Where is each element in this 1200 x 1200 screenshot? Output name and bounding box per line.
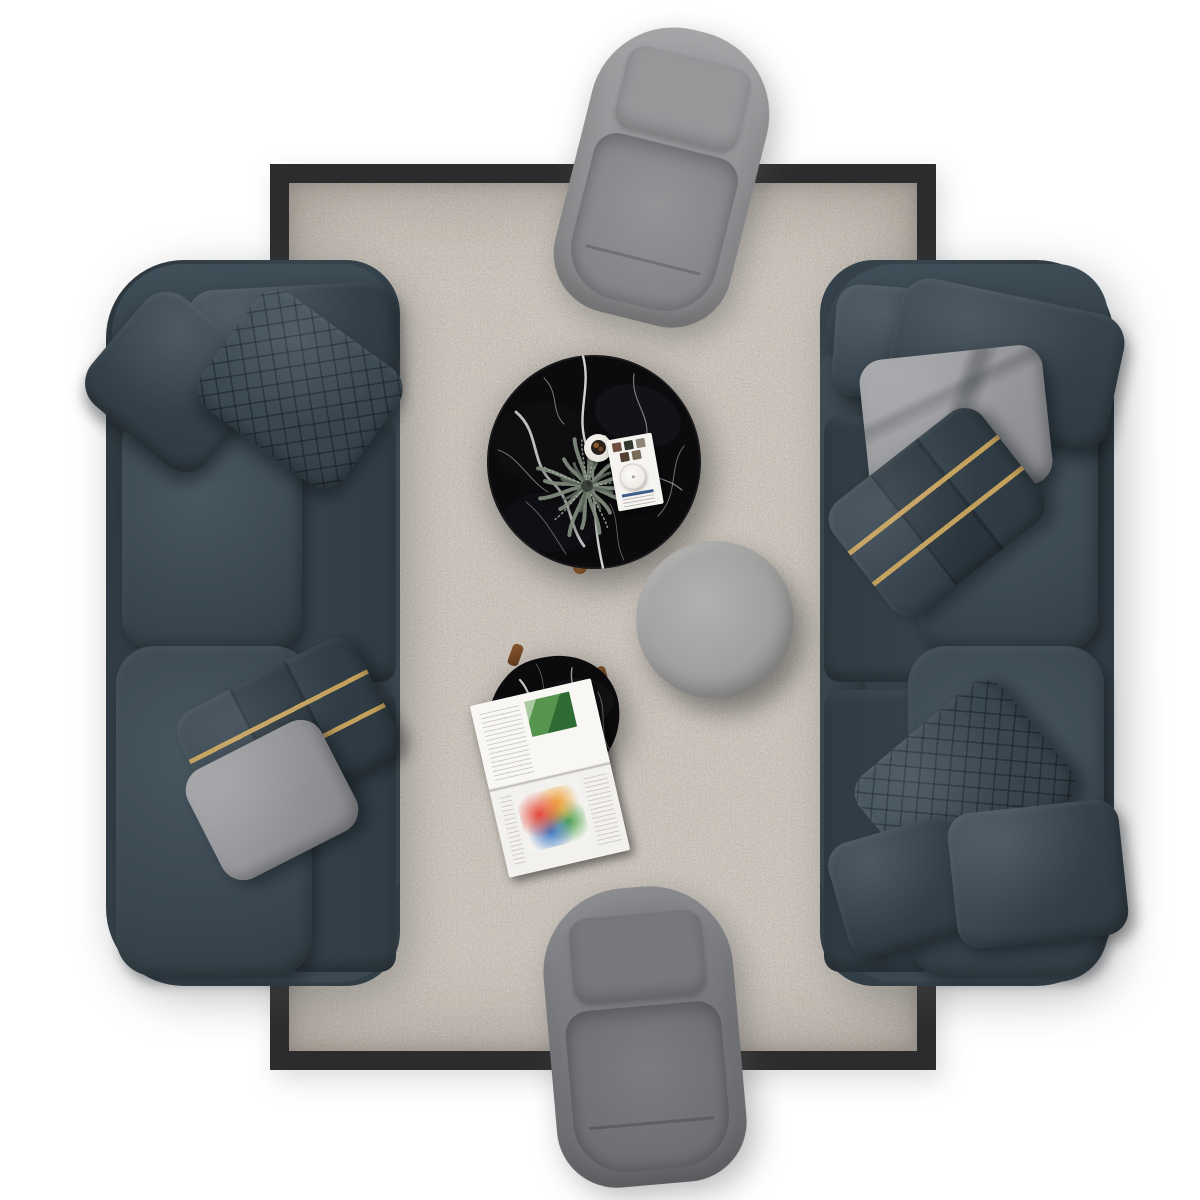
round-pouf [636,541,794,699]
cup-contents [591,440,606,455]
card-photo [612,442,622,452]
candle-wick [632,475,635,478]
candle [618,461,648,491]
armchair-bottom-back-pad [567,908,707,1006]
living-room-top-view [0,0,1200,1200]
card-photo [620,452,630,462]
card-photo [635,438,645,448]
card-photo [624,440,634,450]
armchair-bottom [536,879,751,1192]
card-photo [631,450,641,460]
armchair-bottom-seat [564,1000,733,1177]
pillow-dark-right-bottom [945,797,1130,950]
